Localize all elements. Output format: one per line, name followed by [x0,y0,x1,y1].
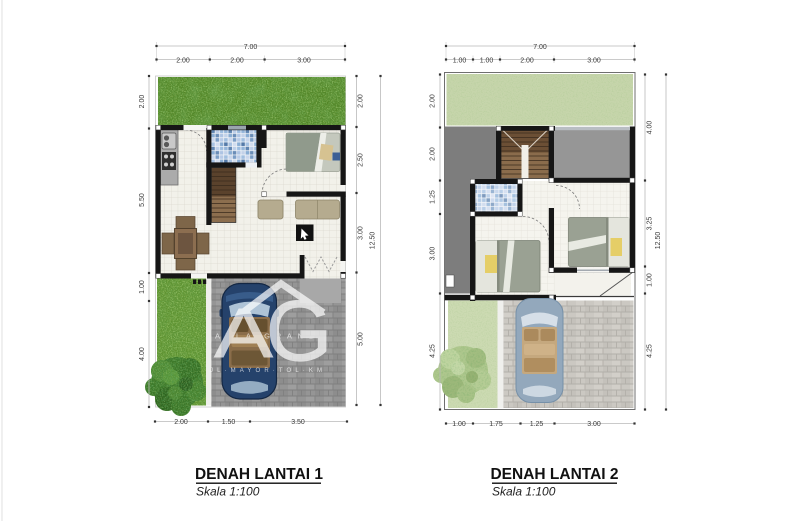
svg-text:4.00: 4.00 [647,121,654,135]
svg-text:5.50: 5.50 [139,193,146,207]
svg-text:1.25: 1.25 [430,190,437,204]
svg-text:7.00: 7.00 [533,44,547,51]
svg-text:12.50: 12.50 [370,232,377,250]
svg-text:Skala 1:100: Skala 1:100 [492,485,556,499]
svg-text:3.00: 3.00 [430,247,437,261]
svg-text:1.75: 1.75 [489,421,503,428]
svg-text:3.50: 3.50 [291,419,305,426]
svg-text:3.25: 3.25 [647,217,654,231]
svg-text:4.25: 4.25 [430,344,437,358]
svg-text:1.00: 1.00 [647,273,654,287]
svg-text:2.50: 2.50 [358,153,365,167]
svg-text:4.25: 4.25 [647,344,654,358]
svg-text:3.00: 3.00 [297,57,311,64]
svg-text:1.00: 1.00 [480,57,494,64]
svg-text:1.00: 1.00 [452,421,466,428]
svg-text:2.00: 2.00 [358,94,365,108]
svg-text:2.00: 2.00 [139,95,146,109]
svg-text:2.00: 2.00 [520,57,534,64]
svg-text:3.00: 3.00 [587,421,601,428]
svg-text:7.00: 7.00 [244,44,258,51]
svg-text:2.00: 2.00 [430,147,437,161]
svg-text:DENAH LANTAI 2: DENAH LANTAI 2 [490,466,618,483]
svg-text:4.00: 4.00 [139,347,146,361]
svg-text:1.50: 1.50 [222,419,236,426]
svg-text:3.00: 3.00 [358,226,365,240]
svg-text:2.00: 2.00 [230,57,244,64]
svg-text:1.25: 1.25 [530,421,544,428]
svg-text:2.00: 2.00 [174,419,188,426]
svg-text:2.00: 2.00 [176,57,190,64]
svg-text:DENAH LANTAI 1: DENAH LANTAI 1 [195,466,323,483]
svg-text:1.00: 1.00 [139,280,146,294]
svg-text:5.00: 5.00 [358,332,365,346]
svg-text:2.00: 2.00 [430,94,437,108]
svg-text:1.00: 1.00 [453,57,467,64]
svg-text:3.00: 3.00 [587,57,601,64]
svg-text:Skala 1:100: Skala 1:100 [196,485,260,499]
svg-text:12.50: 12.50 [655,232,662,250]
